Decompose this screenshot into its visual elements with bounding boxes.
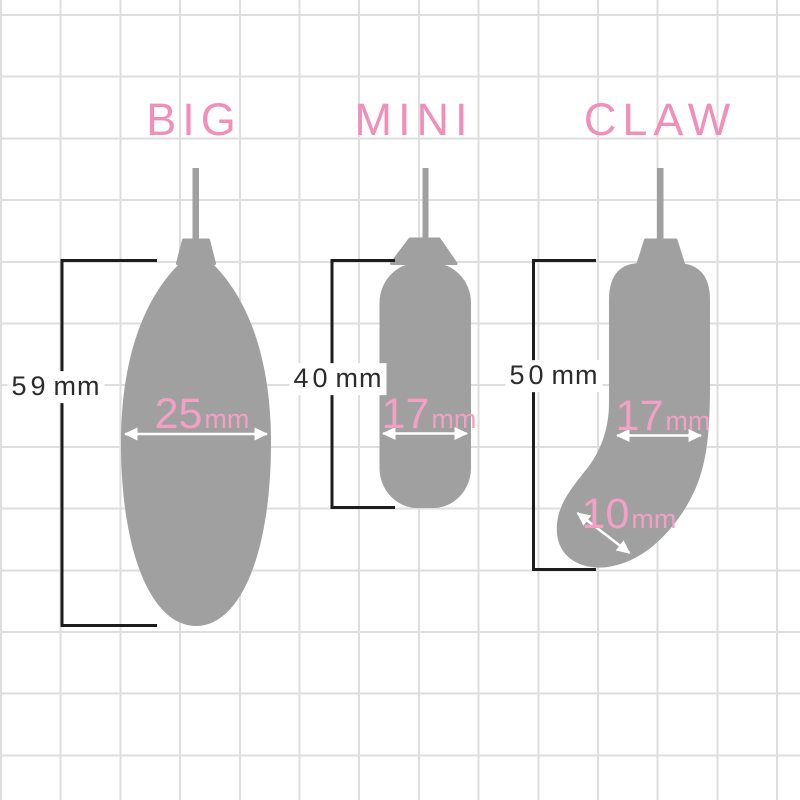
- claw-length-unit: mm: [552, 360, 599, 390]
- mini-product-shape: [380, 168, 472, 508]
- claw-length-value: 50: [509, 360, 547, 390]
- mini-cord: [423, 168, 429, 240]
- big-cord: [193, 168, 200, 242]
- big-diameter-value: 25: [155, 390, 203, 438]
- claw-diameter-value: 17: [616, 392, 664, 440]
- mini-length-unit: mm: [336, 363, 383, 393]
- big-cap: [178, 240, 215, 264]
- claw-tip-diameter-value: 10: [582, 490, 630, 538]
- mini-diameter-unit: mm: [431, 404, 476, 434]
- mini-cap: [392, 239, 457, 264]
- product-label-big: BIG: [146, 94, 242, 146]
- big-length-value: 59: [11, 371, 49, 401]
- size-comparison-diagram: BIG MINI CLAW 59mm 40mm 50mm 25mm 17mm 1…: [0, 0, 800, 800]
- claw-cap: [638, 240, 685, 266]
- claw-diameter-unit: mm: [665, 406, 710, 436]
- claw-diameter-label: 17mm: [616, 395, 711, 438]
- claw-length-label: 50mm: [505, 360, 602, 392]
- product-label-claw: CLAW: [584, 94, 736, 146]
- mini-length-value: 40: [293, 363, 331, 393]
- mini-length-label: 40mm: [289, 363, 386, 395]
- big-length-label: 59mm: [7, 371, 104, 403]
- claw-tip-diameter-unit: mm: [631, 504, 676, 534]
- mini-diameter-label: 17mm: [382, 393, 477, 436]
- big-length-unit: mm: [54, 371, 101, 401]
- mini-body: [380, 263, 472, 508]
- big-diameter-label: 25mm: [155, 393, 250, 436]
- claw-cord: [657, 168, 664, 240]
- mini-diameter-value: 17: [382, 390, 430, 438]
- product-label-mini: MINI: [355, 94, 474, 146]
- big-body: [121, 264, 271, 626]
- claw-tip-diameter-label: 10mm: [582, 493, 677, 536]
- big-diameter-unit: mm: [204, 404, 249, 434]
